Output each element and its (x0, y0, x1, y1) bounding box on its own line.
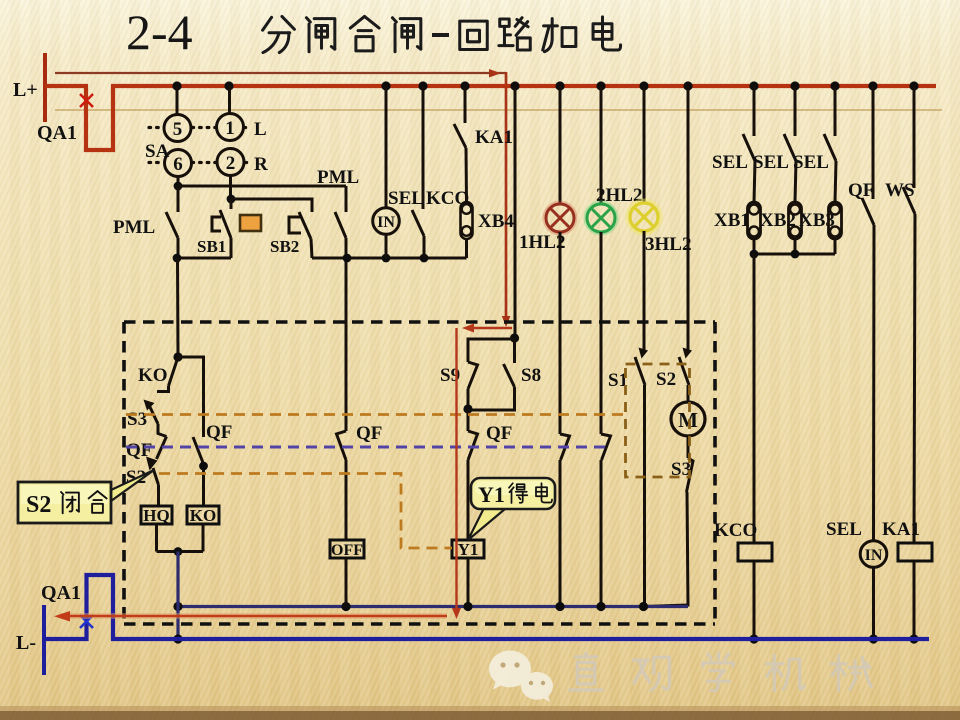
svg-text:2: 2 (226, 153, 236, 174)
svg-text:WS: WS (885, 180, 915, 201)
svg-text:L: L (254, 119, 267, 140)
svg-text:IN: IN (377, 214, 395, 231)
svg-text:KO: KO (190, 506, 216, 525)
svg-text:SEL: SEL (712, 152, 748, 173)
svg-text:S2: S2 (26, 492, 51, 518)
svg-text:M: M (678, 408, 698, 432)
svg-text:XB1: XB1 (714, 210, 750, 231)
svg-text:KA1: KA1 (882, 519, 920, 540)
svg-text:6: 6 (173, 154, 183, 175)
svg-text:SA: SA (145, 141, 170, 162)
svg-text:2-4: 2-4 (126, 4, 193, 60)
svg-text:L+: L+ (13, 79, 38, 101)
svg-text:IN: IN (865, 547, 883, 564)
svg-text:PML: PML (317, 167, 359, 188)
svg-text:XB4: XB4 (478, 211, 514, 232)
svg-text:Y1: Y1 (478, 482, 505, 507)
svg-text:QF: QF (356, 423, 382, 444)
svg-text:QA1: QA1 (37, 122, 77, 144)
svg-text:R: R (254, 154, 268, 175)
svg-text:KA1: KA1 (475, 127, 513, 148)
svg-text:SEL: SEL (388, 188, 424, 209)
svg-text:QF: QF (848, 180, 874, 201)
svg-text:PML: PML (113, 217, 155, 238)
svg-text:SEL: SEL (753, 152, 789, 173)
svg-text:SEL: SEL (826, 519, 862, 540)
svg-text:QF: QF (486, 423, 512, 444)
svg-text:S2: S2 (656, 369, 676, 390)
svg-text:5: 5 (173, 119, 183, 140)
svg-text:HQ: HQ (143, 506, 169, 525)
svg-text:OFF: OFF (331, 542, 363, 559)
svg-text:KCO: KCO (714, 520, 757, 541)
svg-text:SB2: SB2 (270, 237, 299, 256)
svg-text:QA1: QA1 (41, 582, 81, 604)
svg-text:KO: KO (138, 365, 168, 386)
svg-text:S8: S8 (521, 365, 541, 386)
svg-text:1: 1 (225, 118, 235, 139)
svg-text:SB1: SB1 (197, 237, 226, 256)
svg-text:QF: QF (206, 422, 232, 443)
svg-text:3HL2: 3HL2 (645, 234, 691, 255)
svg-text:Y1: Y1 (458, 540, 479, 559)
svg-text:L-: L- (16, 632, 36, 654)
svg-text:SEL: SEL (793, 152, 829, 173)
svg-text:S3: S3 (127, 409, 147, 430)
